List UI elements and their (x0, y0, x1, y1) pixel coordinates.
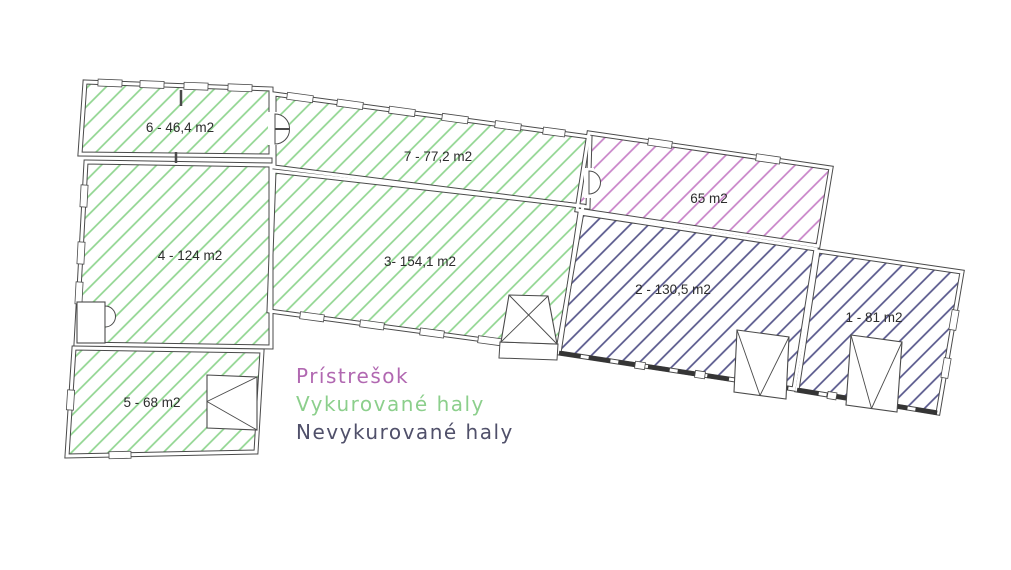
floorplan-svg: 6 - 46,4 m27 - 77,2 m24 - 124 m23- 154,1… (0, 0, 1011, 570)
floorplan-page: 6 - 46,4 m27 - 77,2 m24 - 124 m23- 154,1… (0, 0, 1011, 570)
legend-item-shelter: Prístrešok (296, 362, 514, 390)
room-label-3: 3- 154,1 m2 (384, 254, 456, 269)
room-label-2: 2 - 130,5 m2 (635, 282, 711, 297)
window-icon (66, 390, 74, 410)
legend: PrístrešokVykurované halyNevykurované ha… (296, 362, 514, 446)
gate-room5-icon (207, 375, 257, 430)
gate-room2-icon (734, 330, 789, 399)
room-label-7: 7 - 77,2 m2 (404, 149, 472, 164)
window-icon (109, 451, 131, 458)
window-icon (80, 185, 88, 207)
room-label-4: 4 - 124 m2 (158, 248, 223, 263)
window-icon (827, 392, 837, 400)
window-icon (635, 361, 646, 369)
gate-room3-icon (499, 295, 558, 360)
window-icon (695, 370, 706, 378)
room-label-6: 6 - 46,4 m2 (146, 120, 214, 135)
legend-item-unheated: Nevykurované haly (296, 418, 514, 446)
window-icon (98, 79, 122, 87)
legend-item-heated: Vykurované haly (296, 390, 514, 418)
room-label-5: 5 - 68 m2 (123, 395, 180, 410)
window-icon (228, 84, 252, 92)
gate-room1-icon (846, 335, 902, 412)
window-icon (140, 81, 164, 89)
window-icon (184, 82, 208, 90)
room-label-1: 1 - 81 m2 (845, 310, 902, 325)
window-icon (75, 282, 83, 304)
room-label-shelter: 65 m2 (690, 191, 728, 206)
room-area-6 (80, 82, 271, 156)
window-icon (77, 242, 85, 264)
